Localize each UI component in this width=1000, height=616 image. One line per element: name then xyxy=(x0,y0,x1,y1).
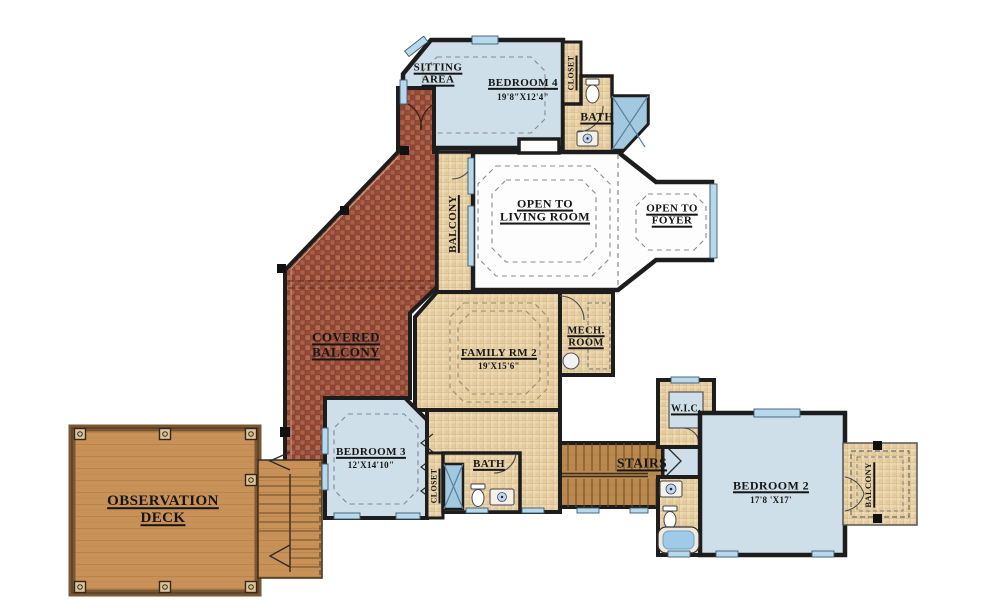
dims-family-rm2: 19'X15'6" xyxy=(478,361,520,371)
sink-bedroom2 xyxy=(660,481,682,497)
label-balcony-bedroom2: BALCONY xyxy=(864,462,874,507)
dims-bedroom4: 19'8"X12'4" xyxy=(497,92,549,102)
shower-bedroom3 xyxy=(444,464,463,509)
toilet-upper xyxy=(586,79,599,103)
living-niche xyxy=(519,139,559,153)
label-bedroom2: BEDROOM 2 xyxy=(733,479,809,492)
room-balcony-bedroom2 xyxy=(843,443,917,525)
tub-bedroom2 xyxy=(658,527,699,553)
label-family-rm2: FAMILY RM 2 xyxy=(461,347,537,359)
sink-upper xyxy=(577,131,598,146)
dims-bedroom3: 12'X14'10" xyxy=(348,460,395,470)
label-bedroom4: BEDROOM 4 xyxy=(488,77,558,89)
toilet-bedroom3 xyxy=(471,484,485,507)
toilet-bedroom2 xyxy=(663,506,677,529)
water-heater xyxy=(563,353,579,369)
label-observation-deck: OBSERVATIONDECK xyxy=(107,493,219,527)
label-bath-bedroom3: BATH xyxy=(473,458,505,470)
label-wic: W.I.C. xyxy=(671,403,701,414)
deck-stairs xyxy=(258,452,322,578)
label-balcony-upper: BALCONY xyxy=(447,195,459,253)
label-sitting-area: SITTINGAREA xyxy=(414,62,463,87)
label-closet-bedroom4: CLOSET xyxy=(568,56,577,91)
room-bath-bedroom2 xyxy=(658,477,700,555)
label-stairs: STAIRS xyxy=(617,455,667,470)
label-covered-balcony: COVEREDBALCONY xyxy=(312,330,380,359)
label-bath-upper: BATH xyxy=(580,112,613,125)
main-stairs xyxy=(560,443,663,507)
sink-bedroom3 xyxy=(490,489,514,505)
label-open-to-foyer: OPEN TOFOYER xyxy=(646,203,698,228)
label-bedroom3: BEDROOM 3 xyxy=(336,446,406,458)
label-open-to-living-room: OPEN TOLIVING ROOM xyxy=(500,198,590,225)
label-closet-bedroom3: CLOSET xyxy=(431,469,440,504)
label-mech-room: MECH.ROOM xyxy=(567,325,604,349)
dims-bedroom2: 17'8 'X17' xyxy=(750,495,792,505)
shower-upper xyxy=(612,96,648,150)
floor-plan: SITTINGAREA BEDROOM 4 19'8"X12'4" CLOSET… xyxy=(0,0,1000,616)
